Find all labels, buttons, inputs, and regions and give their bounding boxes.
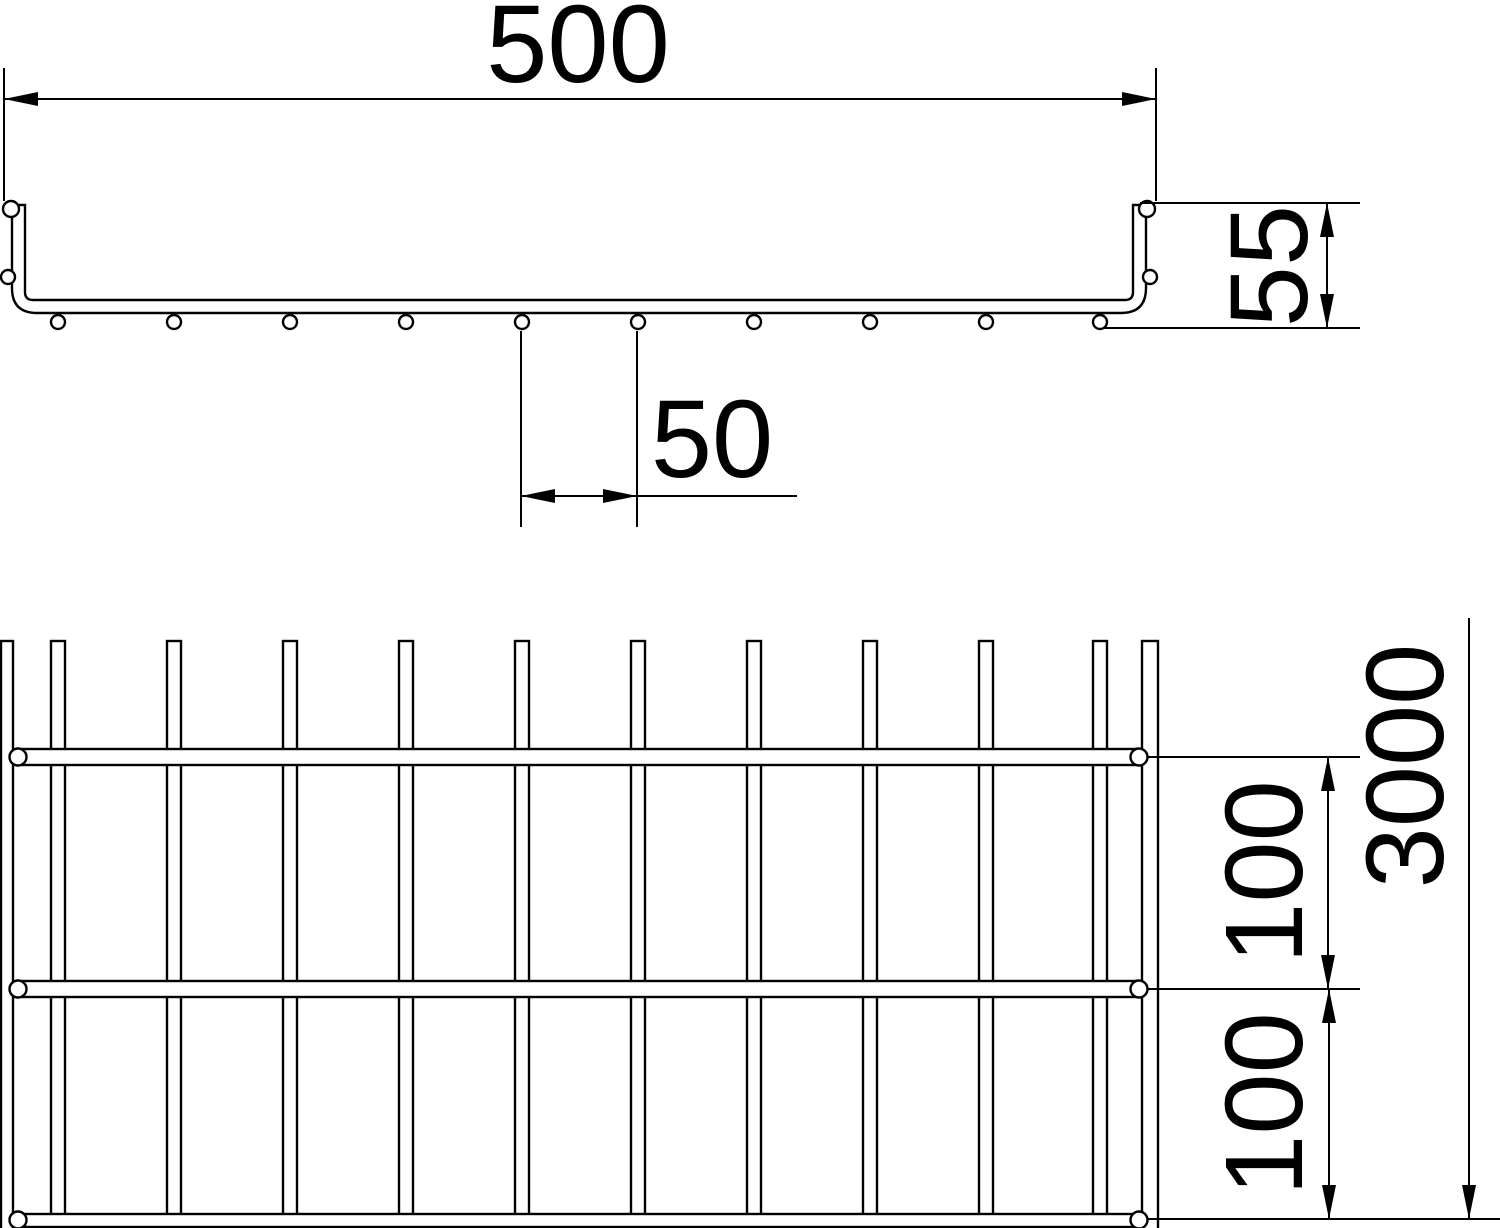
cross-rung — [10, 749, 1148, 766]
rung-end-left — [10, 1212, 27, 1228]
side-wall-wire-left — [1, 270, 15, 284]
bottom-wire-circle — [863, 315, 877, 329]
dim-rung-spacing-upper: 100 — [1203, 757, 1335, 989]
rung-end-right — [1131, 981, 1148, 998]
longitudinal-wire — [747, 641, 761, 1228]
technical-drawing: 500 55 50 — [0, 0, 1500, 1228]
cross-rung — [10, 981, 1148, 998]
rung-end-left — [10, 981, 27, 998]
arrowhead-left — [4, 92, 38, 106]
longitudinal-wire — [283, 641, 297, 1228]
arrowhead-right — [603, 489, 637, 503]
rung-body — [18, 749, 1139, 765]
bottom-wire-circle — [1093, 315, 1107, 329]
rung-end-right — [1131, 749, 1148, 766]
tray-profile — [12, 205, 1146, 313]
dim-wire-pitch: 50 — [521, 331, 797, 527]
bottom-wire-circle — [747, 315, 761, 329]
longitudinal-wire — [167, 641, 181, 1228]
edge-wire-right — [1142, 641, 1158, 1228]
longitudinal-wire — [863, 641, 877, 1228]
dim-rung-spacing-lower-label: 100 — [1203, 1012, 1326, 1196]
longitudinal-wire — [979, 641, 993, 1228]
bottom-wire-circle — [631, 315, 645, 329]
longitudinal-wires — [1, 641, 1158, 1228]
arrowhead-left — [521, 489, 555, 503]
longitudinal-wire — [1093, 641, 1107, 1228]
bottom-wire-circle — [515, 315, 529, 329]
bottom-wire-circle — [283, 315, 297, 329]
bottom-wire-circle — [979, 315, 993, 329]
dim-rung-spacing-lower: 100 — [1203, 989, 1336, 1219]
bottom-wire-circle — [51, 315, 65, 329]
dim-overall-width: 500 — [4, 0, 1156, 201]
dim-overall-length: 3000 — [1344, 618, 1476, 1219]
arrowhead-right — [1122, 92, 1156, 106]
rung-body — [18, 981, 1139, 997]
side-wall-wire-right — [1143, 270, 1157, 284]
longitudinal-wire — [51, 641, 65, 1228]
drawing-canvas: 500 55 50 — [0, 0, 1500, 1228]
rung-body — [18, 1214, 1139, 1227]
bottom-wire-circle — [167, 315, 181, 329]
cross-rung — [10, 1212, 1148, 1228]
dim-overall-length-label: 3000 — [1344, 644, 1467, 889]
longitudinal-wire — [399, 641, 413, 1228]
dim-rung-spacing-upper-label: 100 — [1203, 780, 1326, 964]
bottom-wire-circles — [51, 315, 1107, 329]
dim-wire-pitch-label: 50 — [651, 378, 773, 501]
cross-section-view: 500 55 50 — [1, 0, 1360, 527]
longitudinal-wire — [631, 641, 645, 1228]
rung-end-right — [1131, 1212, 1148, 1228]
side-rail-wire-top-left — [3, 201, 19, 217]
rung-end-left — [10, 749, 27, 766]
bottom-wire-circle — [399, 315, 413, 329]
plan-view: 100 100 3000 — [1, 618, 1500, 1228]
longitudinal-wire — [515, 641, 529, 1228]
dim-overall-width-label: 500 — [486, 0, 670, 106]
edge-wire-left — [1, 641, 13, 1228]
arrowhead-bottom — [1462, 1185, 1476, 1219]
dim-side-height-label: 55 — [1208, 205, 1331, 327]
